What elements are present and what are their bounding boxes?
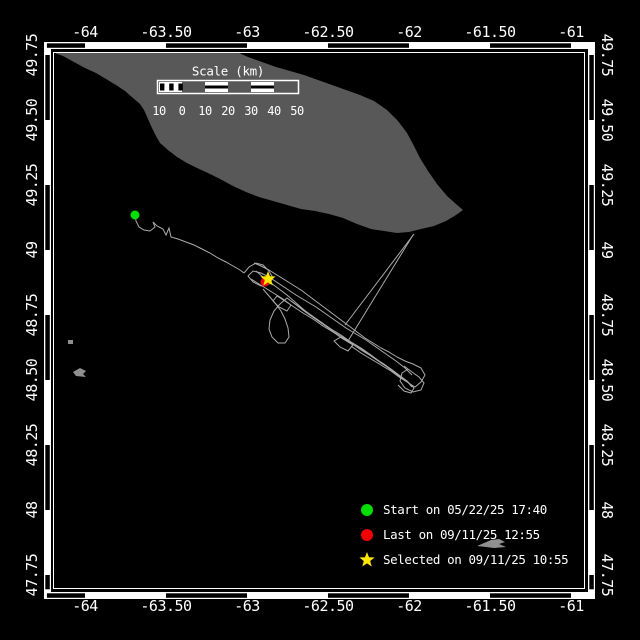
- legend-selected-label: Selected on 09/11/25 10:55: [383, 552, 568, 567]
- scale-tick-label-0: 10: [152, 104, 165, 118]
- axis-label-top--62: -62: [396, 23, 422, 41]
- track-segment-cluster[interactable]: [251, 279, 412, 387]
- frame-zebra-segment: [45, 315, 50, 380]
- scale-tick-label-2: 10: [198, 104, 211, 118]
- axis-label-right-49.50: 49.50: [598, 99, 616, 142]
- track-segment-island-trip[interactable]: [345, 234, 414, 325]
- track-lines[interactable]: [135, 215, 425, 393]
- scale-tick-label-5: 40: [267, 104, 280, 118]
- land-fragment: [68, 340, 73, 344]
- scale-tick-label-3: 20: [221, 104, 234, 118]
- axis-label-right-48.50: 48.50: [598, 359, 616, 402]
- axis-label-right-49: 49: [598, 241, 616, 258]
- axis-label-bottom--62.50: -62.50: [302, 597, 353, 615]
- axis-label-bottom--62: -62: [396, 597, 422, 615]
- axis-label-bottom--61: -61: [558, 597, 584, 615]
- frame-zebra-segment: [589, 445, 594, 510]
- axis-label-left-48.50: 48.50: [23, 359, 41, 402]
- axis-label-right-48.75: 48.75: [598, 294, 616, 337]
- map-legend: Start on 05/22/25 17:40 Last on 09/11/25…: [358, 497, 568, 572]
- legend-row-last: Last on 09/11/25 12:55: [358, 522, 568, 547]
- axis-label-right-48.25: 48.25: [598, 424, 616, 467]
- frame-zebra-segment: [589, 315, 594, 380]
- axis-label-top--64: -64: [72, 23, 98, 41]
- scale-tick-label-4: 30: [244, 104, 257, 118]
- axis-label-top--62.50: -62.50: [302, 23, 353, 41]
- axis-label-right-48: 48: [598, 501, 616, 518]
- legend-start-label: Start on 05/22/25 17:40: [383, 502, 547, 517]
- track-segment-island-trip[interactable]: [348, 235, 413, 341]
- axis-label-left-49: 49: [23, 241, 41, 258]
- axis-label-top--61.50: -61.50: [464, 23, 515, 41]
- track-segment-outbound[interactable]: [135, 215, 244, 273]
- frame-zebra-segment: [45, 575, 50, 589]
- axis-label-right-49.75: 49.75: [598, 34, 616, 77]
- axis-label-top--61: -61: [558, 23, 584, 41]
- axis-label-left-47.75: 47.75: [23, 554, 41, 597]
- scale-bar-title: Scale (km): [192, 64, 264, 79]
- frame-zebra-segment: [45, 55, 50, 120]
- frame-zebra-segment: [166, 43, 247, 48]
- start-position-marker[interactable]: [131, 211, 140, 220]
- axis-label-left-49.25: 49.25: [23, 164, 41, 207]
- axis-label-right-49.25: 49.25: [598, 164, 616, 207]
- start-dot-icon: [358, 501, 376, 519]
- frame-zebra-segment: [328, 43, 409, 48]
- legend-row-selected: Selected on 09/11/25 10:55: [358, 547, 568, 572]
- axis-label-top--63.50: -63.50: [140, 23, 191, 41]
- axis-label-bottom--61.50: -61.50: [464, 597, 515, 615]
- axis-label-left-48: 48: [23, 501, 41, 518]
- track-segment-cluster[interactable]: [263, 289, 414, 393]
- land-fragments: [68, 340, 86, 377]
- frame-zebra-segment: [47, 43, 85, 48]
- axis-label-bottom--63.50: -63.50: [140, 597, 191, 615]
- frame-zebra-segment: [490, 43, 571, 48]
- axis-label-right-47.75: 47.75: [598, 554, 616, 597]
- land-fragment: [73, 368, 86, 377]
- axis-label-top--63: -63: [234, 23, 260, 41]
- legend-last-label: Last on 09/11/25 12:55: [383, 527, 540, 542]
- scale-tick-label-6: 50: [290, 104, 303, 118]
- axis-label-left-48.75: 48.75: [23, 294, 41, 337]
- selected-star-icon: [358, 551, 376, 569]
- tracking-map-window: -64-64-63.50-63.50-63-63-62.50-62.50-62-…: [0, 0, 640, 640]
- frame-zebra-segment: [589, 55, 594, 120]
- frame-zebra-segment: [45, 445, 50, 510]
- frame-zebra-segment: [45, 185, 50, 250]
- axis-label-left-49.50: 49.50: [23, 99, 41, 142]
- axis-label-left-48.25: 48.25: [23, 424, 41, 467]
- frame-zebra-segment: [589, 185, 594, 250]
- scale-tick-label-1: 0: [179, 104, 186, 118]
- last-dot-icon: [358, 526, 376, 544]
- axis-label-left-49.75: 49.75: [23, 34, 41, 77]
- axis-label-bottom--64: -64: [72, 597, 98, 615]
- island-landmass: [52, 52, 463, 233]
- track-segment-cluster[interactable]: [254, 263, 425, 387]
- axis-label-bottom--63: -63: [234, 597, 260, 615]
- legend-row-start: Start on 05/22/25 17:40: [358, 497, 568, 522]
- frame-zebra-segment: [589, 575, 594, 589]
